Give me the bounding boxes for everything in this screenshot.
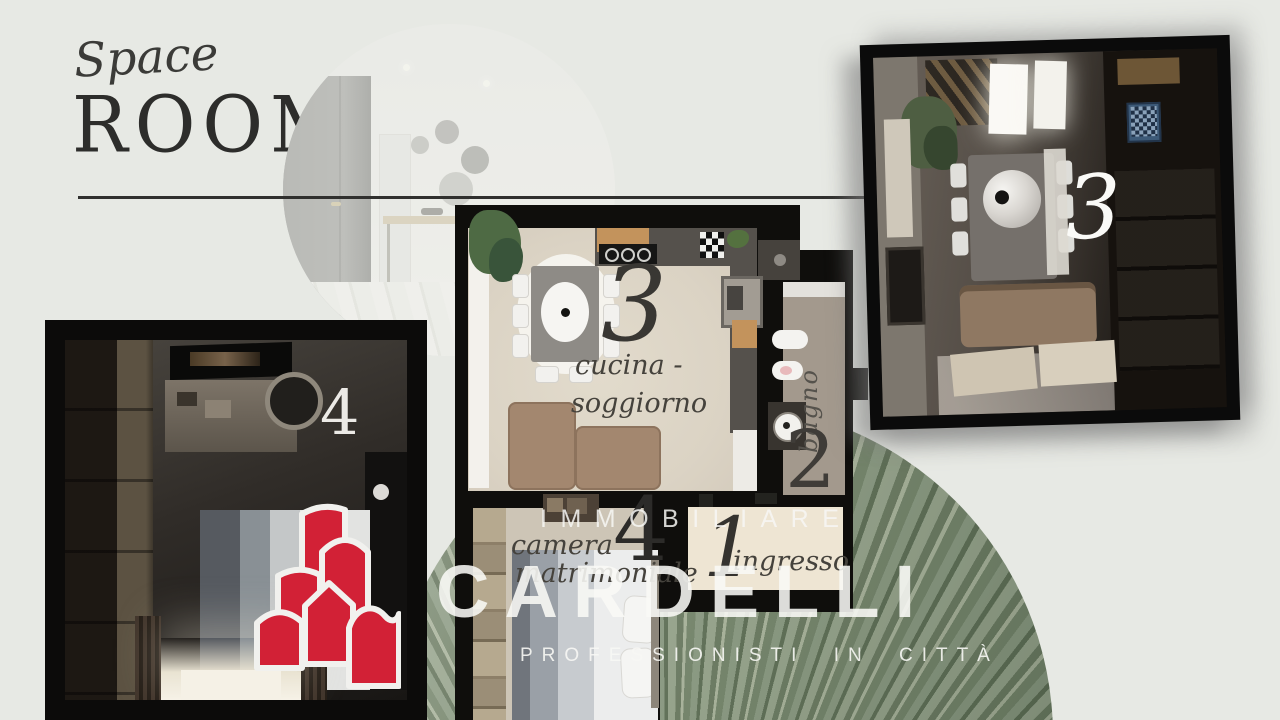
chair (535, 366, 559, 383)
round-mirror (265, 372, 323, 430)
render-sofa (959, 282, 1097, 348)
skylight (1033, 61, 1067, 130)
room-number-2: 2 (785, 420, 836, 500)
plan-exterior-notch (800, 205, 853, 250)
room-number-3: 3 (601, 252, 667, 356)
wall-art (884, 119, 913, 238)
watermark-immobiliare: IMMOBILIARE (540, 505, 852, 534)
room-label-soggiorno: soggiorno (571, 388, 707, 419)
rug (950, 347, 1038, 397)
chair (512, 334, 529, 358)
sink-basin (727, 286, 743, 310)
watermark-cardelli: CARDELLI (436, 549, 930, 634)
bidet-detail (780, 366, 792, 375)
chair (951, 197, 968, 221)
pendant-lamp (561, 308, 570, 317)
desk-item (205, 400, 231, 418)
utility-knob (774, 254, 786, 266)
floor-plan: 3 cucina - soggiorno bagno 2 camera matr… (455, 198, 875, 720)
page-background: Space ROOM (0, 0, 1280, 720)
curtain-left (135, 616, 161, 700)
chair (512, 274, 529, 298)
kitchen-shelf (1117, 57, 1180, 85)
chair (950, 163, 967, 187)
shower (783, 282, 845, 297)
desk-item (177, 392, 197, 406)
cardelli-buildings-logo (253, 490, 401, 705)
drying-rack (700, 232, 724, 258)
chair (952, 231, 969, 255)
framed-art (885, 247, 925, 326)
door-lintel (755, 493, 777, 504)
watermark-tagline: PROFESSIONISTI IN CITTÀ (520, 645, 999, 667)
white-cabinet (733, 430, 757, 491)
living-render-panel: 3 (860, 35, 1241, 430)
sofa-chaise (508, 402, 576, 490)
counter-wood-accent (732, 320, 757, 348)
room-label-cucina: cucina - (575, 350, 682, 381)
wall-shelf (469, 238, 489, 488)
render-number-4: 4 (320, 376, 359, 449)
tv-glow (190, 352, 260, 366)
kitchen-cabinets (1114, 168, 1220, 371)
chair (512, 304, 529, 328)
skylight (988, 64, 1028, 135)
rug (1038, 340, 1116, 387)
tile-grid (1131, 106, 1158, 137)
render-number-3: 3 (1064, 155, 1123, 260)
plan-wall-protrusion (845, 368, 868, 400)
living-render-image: 3 (873, 48, 1227, 416)
